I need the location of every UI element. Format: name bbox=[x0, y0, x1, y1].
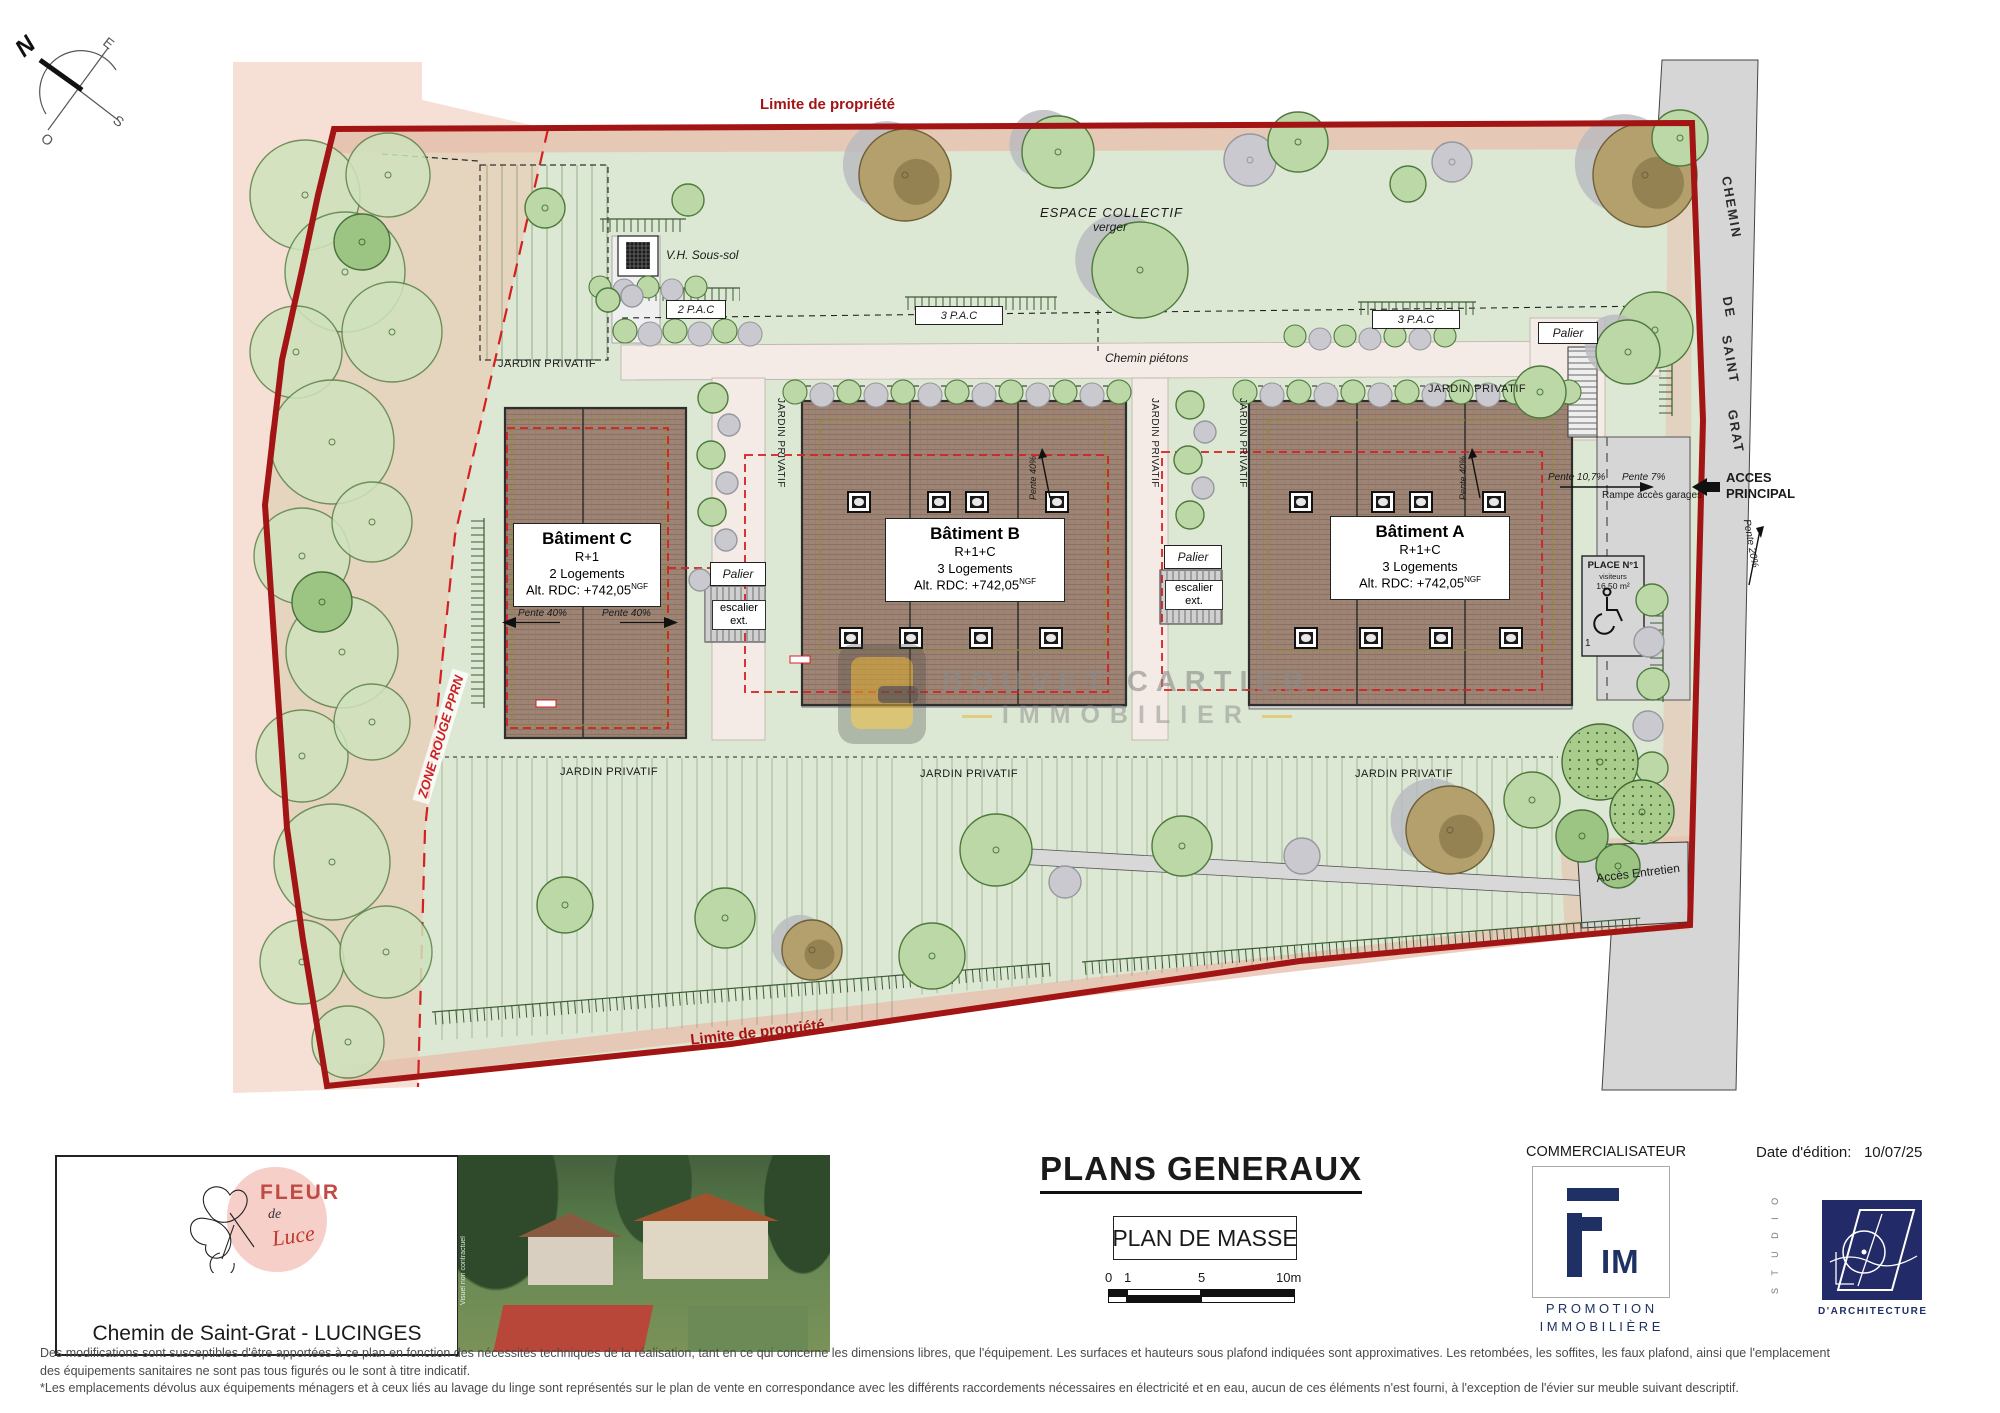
label-pente-107: Pente 10,7% bbox=[1548, 472, 1605, 483]
fim-logo: IM bbox=[1532, 1166, 1670, 1298]
label-jardin-privatif-3: JARDIN PRIVATIF bbox=[1149, 398, 1160, 488]
studio-vertical-label: S T U D I O bbox=[1770, 1193, 1780, 1294]
compass-n: N bbox=[10, 30, 41, 62]
pac-box-1: 2 P.A.C bbox=[666, 300, 726, 319]
label-jardin-privatif-6: JARDIN PRIVATIF bbox=[560, 766, 658, 778]
plan-type-box: PLAN DE MASSE bbox=[1113, 1216, 1297, 1260]
studio-architecture-label: D'ARCHITECTURE bbox=[1818, 1306, 1926, 1317]
compass-s: S bbox=[110, 112, 127, 130]
disclaimer-line-3: *Les emplacements dévolus aux équipement… bbox=[40, 1381, 1739, 1395]
escalier-ext-label-2: escalierext. bbox=[1165, 580, 1223, 610]
project-address: Chemin de Saint-Grat - LUCINGES bbox=[57, 1322, 457, 1346]
compass-e: E bbox=[100, 34, 117, 52]
disclaimer-line-1: Des modifications sont susceptibles d'êt… bbox=[40, 1346, 1830, 1360]
pente40-b: Pente 40% bbox=[1028, 456, 1038, 500]
label-jardin-privatif-8: JARDIN PRIVATIF bbox=[1355, 768, 1453, 780]
batiment-b-label: Bâtiment B R+1+C 3 Logements Alt. RDC: +… bbox=[885, 518, 1065, 602]
label-limite-propriete-top: Limite de propriété bbox=[760, 96, 895, 113]
label-chemin-pietons: Chemin piétons bbox=[1105, 351, 1188, 365]
fim-promotion-label: P R O M O T I O N I M M O B I L I È R E bbox=[1532, 1300, 1668, 1336]
project-photo: Visuel non contractuel bbox=[458, 1155, 830, 1352]
page-title: PLANS GENERAUX bbox=[1040, 1150, 1360, 1194]
pente40-c-right: Pente 40% bbox=[602, 608, 651, 619]
edition-date: Date d'édition: 10/07/25 bbox=[1756, 1144, 1922, 1161]
place-n1-number: 1 bbox=[1585, 638, 1591, 649]
bouvet-cartier-logo-icon bbox=[838, 644, 926, 744]
pac-box-2: 3 P.A.C bbox=[915, 306, 1003, 325]
label-jardin-privatif-1: JARDIN PRIVATIF bbox=[498, 358, 596, 370]
disclaimer-line-2: des équipements sanitaires ne sont pas t… bbox=[40, 1364, 470, 1378]
photo-disclaimer: Visuel non contractuel bbox=[460, 1236, 467, 1305]
label-jardin-privatif-5: JARDIN PRIVATIF bbox=[1428, 383, 1526, 395]
label-espace-collectif: ESPACE COLLECTIF verger bbox=[1040, 205, 1180, 234]
palier-box-1: Palier bbox=[710, 562, 766, 586]
label-jardin-privatif-2: JARDIN PRIVATIF bbox=[775, 398, 786, 488]
pente40-a: Pente 40% bbox=[1458, 456, 1468, 500]
commercialisateur-label: COMMERCIALISATEUR bbox=[1526, 1144, 1676, 1160]
escalier-ext-label-1: escalierext. bbox=[712, 600, 766, 630]
pente40-c-left: Pente 40% bbox=[518, 608, 567, 619]
scale-bar: 0 1 5 10m bbox=[1108, 1270, 1298, 1306]
studio-architecture-logo bbox=[1822, 1200, 1922, 1300]
label-pente-7: Pente 7% bbox=[1622, 472, 1665, 483]
label-jardin-privatif-4: JARDIN PRIVATIF bbox=[1237, 398, 1248, 488]
flower-sketch-icon bbox=[172, 1173, 262, 1273]
palier-box-2: Palier bbox=[1164, 545, 1222, 569]
project-title-block: FLEUR de Luce Chemin de Saint-Grat - LUC… bbox=[55, 1155, 459, 1356]
label-acces-principal: ACCES PRINCIPAL bbox=[1726, 470, 1795, 501]
label-rampe-garages: Rampe accès garages bbox=[1602, 490, 1702, 501]
compass-rose: N E S O bbox=[10, 30, 127, 149]
batiment-a-label: Bâtiment A R+1+C 3 Logements Alt. RDC: +… bbox=[1330, 516, 1510, 600]
compass-o: O bbox=[38, 130, 57, 149]
batiment-c-label: Bâtiment C R+1 2 Logements Alt. RDC: +74… bbox=[513, 523, 661, 607]
label-jardin-privatif-7: JARDIN PRIVATIF bbox=[920, 768, 1018, 780]
palier-box-3: Palier bbox=[1538, 322, 1598, 344]
label-vh-sous-sol: V.H. Sous-sol bbox=[666, 248, 738, 262]
place-n1-label: PLACE N°1 visiteurs 16,50 m² bbox=[1583, 560, 1643, 592]
fleur-de-luce-logo: FLEUR de Luce bbox=[172, 1165, 352, 1285]
watermark-bouvet-cartier: BOUVET CARTIER IMMOBILIER bbox=[838, 644, 1312, 744]
pac-box-3: 3 P.A.C bbox=[1372, 310, 1460, 329]
